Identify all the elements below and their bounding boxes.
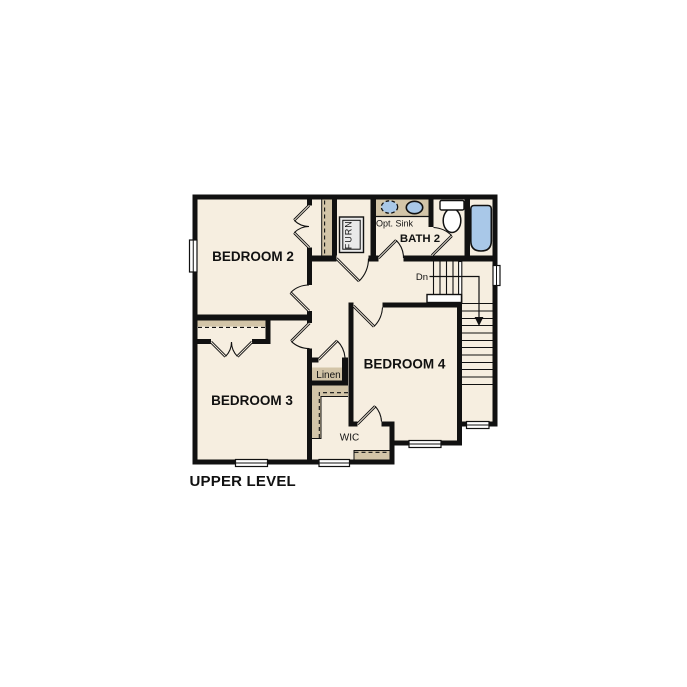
svg-text:BEDROOM 3: BEDROOM 3 [211,393,293,408]
svg-text:BEDROOM 4: BEDROOM 4 [364,357,446,372]
svg-text:Dn: Dn [416,272,428,283]
svg-text:Linen: Linen [316,370,340,381]
svg-text:WIC: WIC [340,433,359,444]
svg-text:UPPER LEVEL: UPPER LEVEL [190,473,296,490]
svg-text:Opt. Sink: Opt. Sink [376,219,414,229]
svg-text:BATH 2: BATH 2 [400,233,440,245]
svg-text:FURN: FURN [344,220,354,249]
svg-text:BEDROOM 2: BEDROOM 2 [212,249,294,264]
